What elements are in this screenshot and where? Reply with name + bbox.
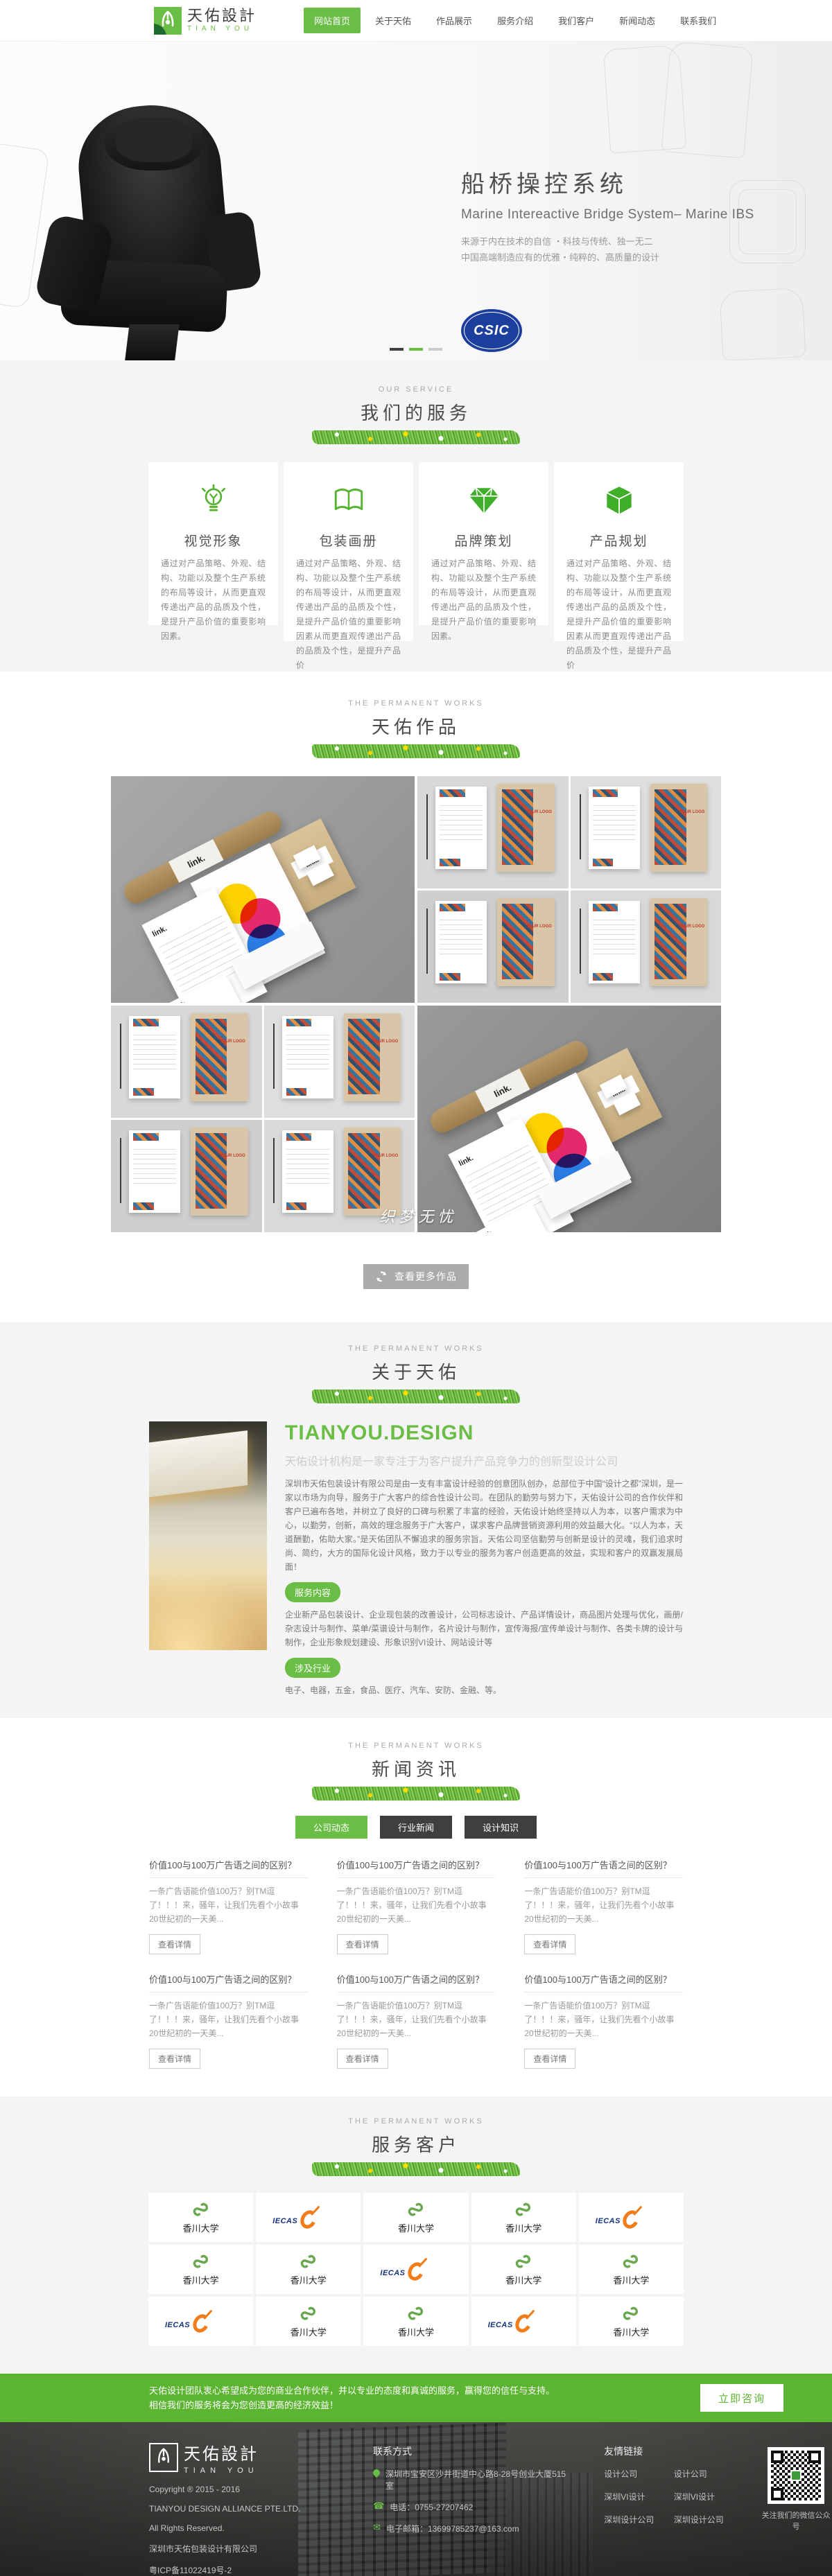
works-title: 天佑作品 [0,713,832,739]
services-eyebrow: OUR SERVICE [0,385,832,394]
service-card-product[interactable]: 产品规划 通过对产品策略、外观、结构、功能以及整个生产系统的布局等设计，从而更直… [554,462,684,641]
diamond-icon [467,483,501,518]
csic-logo: CSIC [461,309,522,352]
kagawa-university-logo [406,2200,426,2220]
kagawa-university-logo [621,2252,641,2272]
grass-divider-image [312,1390,520,1403]
office-photo [149,1421,267,1650]
portfolio-thumb[interactable]: YOUR LOGO [417,776,569,888]
portfolio-item-brochures: YOUR LOGO YOUR LOGO YOUR LOGO YOUR LOGO [417,776,721,1003]
news-item: 价值100与100万广告语之间的区别？ 一条广告语能价值100万？别TM逗了！！… [149,1858,308,1954]
tab-company-news[interactable]: 公司动态 [295,1816,367,1839]
view-detail-button[interactable]: 查看详情 [524,2049,575,2069]
news-item-title[interactable]: 价值100与100万广告语之间的区别？ [524,1972,683,1992]
clients-title: 服务客户 [0,2131,832,2157]
service-scope-text: 企业新产品包装设计、企业现包装的改善设计，公司标志设计、产品详情设计，商品图片处… [285,1608,683,1649]
clients-eyebrow: THE PERMANENT WORKS [0,2117,832,2126]
client-logo-cell[interactable]: 香川大学 [256,2297,361,2346]
news-item: 价值100与100万广告语之间的区别？ 一条广告语能价值100万？别TM逗了！！… [524,1972,683,2069]
icp-number: 粤ICP备11022419号-2 [149,2564,324,2576]
footer-logo-text-en: TIAN YOU [184,2467,259,2475]
hero-tagline-1: 来源于内在技术的自信 ・科技与传统、独一无二 [461,234,754,249]
about-eyebrow: THE PERMANENT WORKS [0,1344,832,1353]
cta-line-1: 天佑设计团队衷心希望成为您的商业合作伙伴，并以专业的态度和真诚的服务，赢得您的信… [149,2383,700,2398]
nav-item-home[interactable]: 网站首页 [304,8,361,33]
jacket-sketch [661,42,753,159]
grass-divider-image [312,2162,520,2176]
phone-text: 电话：0755-27207462 [390,2501,473,2513]
portfolio-thumb[interactable]: YOUR LOGO [571,891,722,1003]
service-card-text: 通过对产品策略、外观、结构、功能以及整个生产系统的布局等设计，从而更直观传递出产… [161,557,266,644]
hero-tagline-2: 中国高端制造应有的优雅・纯粹的、高质量的设计 [461,249,754,265]
iecas-logo [189,2310,213,2333]
tab-design-knowledge[interactable]: 设计知识 [465,1816,537,1839]
nav-item-services[interactable]: 服务介绍 [487,8,544,33]
hero-subtitle: Marine Intereactive Bridge System– Marin… [461,207,754,222]
book-icon [331,483,366,518]
service-card-title: 产品规划 [566,531,671,550]
phone-icon: ☎ [373,2501,384,2511]
client-logo-cell[interactable]: IECAS [148,2297,253,2346]
main-nav: 网站首页 关于天佑 作品展示 服务介绍 我们客户 新闻动态 联系我们 [304,8,727,33]
nav-item-clients[interactable]: 我们客户 [548,8,605,33]
client-logo-cell[interactable]: 香川大学 [148,2193,253,2242]
view-detail-button[interactable]: 查看详情 [149,2049,200,2069]
copyright-text: Copyright ® 2015 - 2016 [149,2485,324,2494]
news-item-title[interactable]: 价值100与100万广告语之间的区别？ [524,1858,683,1878]
news-item: 价值100与100万广告语之间的区别？ 一条广告语能价值100万？别TM逗了！！… [524,1858,683,1954]
carousel-indicators [390,348,442,351]
kagawa-university-logo [299,2252,318,2272]
client-logo-cell[interactable]: 香川大学 [148,2245,253,2294]
service-card-text: 通过对产品策略、外观、结构、功能以及整个生产系统的布局等设计，从而更直观传递出产… [431,557,536,644]
news-item-excerpt: 一条广告语能价值100万？别TM逗了！！！来，骚年，让我们先看个小故事 20世纪… [337,1999,496,2040]
service-card-text: 通过对产品策略、外观、结构、功能以及整个生产系统的布局等设计，从而更直观传递出产… [296,557,401,673]
nav-item-contact[interactable]: 联系我们 [670,8,727,33]
section-services: OUR SERVICE 我们的服务 视觉形象 通过对产品策略、外观、结构、功能以… [0,360,832,672]
client-logo-cell[interactable]: 香川大学 [579,2245,684,2294]
news-item-excerpt: 一条广告语能价值100万？别TM逗了！！！来，骚年，让我们先看个小故事 20世纪… [149,1999,308,2040]
news-tabs: 公司动态 行业新闻 设计知识 [0,1816,832,1839]
portfolio-grid: link. link. link. link. YOUR LOGO YOUR L… [111,776,721,1232]
industries-tag[interactable]: 涉及行业 [285,1658,340,1678]
friend-link[interactable]: 深圳VI设计 [604,2491,665,2503]
news-item-excerpt: 一条广告语能价值100万？别TM逗了！！！来，骚年，让我们先看个小故事 20世纪… [524,1884,683,1926]
cta-line-2: 相信我们的服务将会为您创造更高的经济效益！ [149,2398,700,2412]
carousel-dot[interactable] [428,348,442,351]
news-title: 新闻资讯 [0,1755,832,1781]
friend-link[interactable]: 设计公司 [674,2468,735,2480]
news-item-excerpt: 一条广告语能价值100万？别TM逗了！！！来，骚年，让我们先看个小故事 20世纪… [149,1884,308,1926]
service-card-title: 视觉形象 [161,531,266,550]
kagawa-university-logo [191,2252,211,2272]
industries-text: 电子、电器，五金，食品、医疗、汽车、安防、金融、等。 [285,1683,683,1697]
about-subheading: 天佑设计机构是一家专注于为客户提升产品竞争力的创新型设计公司 [285,1452,683,1469]
client-logo-cell[interactable]: 香川大学 [471,2193,576,2242]
tianyou-logo-icon [154,7,182,35]
portfolio-thumb[interactable]: YOUR LOGO [264,1006,415,1118]
portfolio-thumb[interactable]: YOUR LOGO [111,1120,262,1232]
hero-banner: 船桥操控系统 Marine Intereactive Bridge System… [0,42,832,360]
mail-icon: ✉ [373,2523,381,2532]
kagawa-university-logo [299,2304,318,2324]
cube-icon [602,483,636,518]
portfolio-thumb[interactable]: YOUR LOGO [111,1006,262,1118]
news-item-excerpt: 一条广告语能价值100万？别TM逗了！！！来，骚年，让我们先看个小故事 20世纪… [524,1999,683,2040]
rights-text: All Rights Reserved. [149,2523,324,2533]
friend-link[interactable]: 深圳设计公司 [674,2514,735,2525]
email-text: 电子邮箱：13699785237@163.com [386,2523,519,2534]
news-item: 价值100与100万广告语之间的区别？ 一条广告语能价值100万？别TM逗了！！… [337,1972,496,2069]
grass-divider-image [312,744,520,758]
view-detail-button[interactable]: 查看详情 [524,1934,575,1954]
section-news: THE PERMANENT WORKS 新闻资讯 公司动态 行业新闻 设计知识 … [0,1718,832,2096]
location-icon [372,2468,381,2478]
refresh-icon [375,1270,388,1283]
client-logo-cell[interactable]: IECAS [471,2297,576,2346]
friend-link[interactable]: 深圳VI设计 [674,2491,735,2503]
hero-text-block: 船桥操控系统 Marine Intereactive Bridge System… [461,165,754,265]
address-text: 深圳市宝安区沙井街道中心路8-28号创业大厦515室 [385,2468,569,2491]
service-card-title: 包装画册 [296,531,401,550]
site-footer: 天佑設計 TIAN YOU Copyright ® 2015 - 2016 TI… [0,2422,832,2576]
portfolio-item-stationery[interactable]: link. link. link. link. [111,776,415,1003]
news-grid: 价值100与100万广告语之间的区别？ 一条广告语能价值100万？别TM逗了！！… [149,1858,683,2069]
about-heading: TIANYOU.DESIGN [285,1421,683,1445]
service-card-text: 通过对产品策略、外观、结构、功能以及整个生产系统的布局等设计，从而更直观传递出产… [566,557,671,673]
company-name-cn: 深圳市天佑包装设计有限公司 [149,2543,324,2555]
portfolio-item-brochures: YOUR LOGO YOUR LOGO YOUR LOGO YOUR LOGO [111,1006,415,1232]
news-item-title[interactable]: 价值100与100万广告语之间的区别？ [149,1858,308,1878]
wechat-qr-code [768,2447,824,2504]
contact-title: 联系方式 [373,2444,569,2458]
iecas-logo [619,2206,643,2229]
news-eyebrow: THE PERMANENT WORKS [0,1742,832,1750]
news-item: 价值100与100万广告语之间的区别？ 一条广告语能价值100万？别TM逗了！！… [337,1858,496,1954]
client-logo-cell[interactable]: 香川大学 [579,2297,684,2346]
client-logo-cell[interactable]: IECAS [256,2193,361,2242]
section-clients: THE PERMANENT WORKS 服务客户 香川大学 IECAS 香川大学… [0,2096,832,2374]
portfolio-item-stationery[interactable]: link. link. link. link. [417,1006,721,1232]
service-scope-tag[interactable]: 服务内容 [285,1582,340,1602]
portfolio-thumb[interactable]: YOUR LOGO [571,776,722,888]
section-works: THE PERMANENT WORKS 天佑作品 link. link. lin… [0,672,832,1322]
grass-divider-image [312,1787,520,1800]
friend-link[interactable]: 深圳设计公司 [604,2514,665,2525]
news-item-title[interactable]: 价值100与100万广告语之间的区别？ [337,1858,496,1878]
qr-caption: 关注我们的微信公众号 [760,2509,832,2532]
client-logo-cell[interactable]: IECAS [579,2193,684,2242]
logo-text-en: TIAN YOU [187,26,257,33]
company-name-en: TIANYOU DESIGN ALLIANCE PTE.LTD. [149,2504,324,2514]
kagawa-university-logo [514,2252,533,2272]
carousel-dot-active[interactable] [409,348,423,351]
nav-item-about[interactable]: 关于天佑 [365,8,422,33]
section-about: THE PERMANENT WORKS 关于天佑 TIANYOU.DESIGN … [0,1322,832,1718]
news-item-excerpt: 一条广告语能价值100万？别TM逗了！！！来，骚年，让我们先看个小故事 20世纪… [337,1884,496,1926]
service-card-branding[interactable]: 品牌策划 通过对产品策略、外观、结构、功能以及整个生产系统的布局等设计，从而更直… [419,462,548,625]
view-detail-button[interactable]: 查看详情 [337,1934,388,1954]
bulb-icon [196,483,231,518]
client-logo-cell[interactable]: 香川大学 [363,2297,468,2346]
client-logo-cell[interactable]: 香川大学 [471,2245,576,2294]
site-logo[interactable]: 天佑設計 TIAN YOU [154,7,257,35]
portfolio-thumb[interactable]: YOUR LOGO [417,891,569,1003]
news-item-title[interactable]: 价值100与100万广告语之间的区别？ [337,1972,496,1992]
service-card-brochure[interactable]: 包装画册 通过对产品策略、外观、结构、功能以及整个生产系统的布局等设计，从而更直… [284,462,413,641]
service-card-title: 品牌策划 [431,531,536,550]
carousel-dot[interactable] [390,348,404,351]
footer-logo[interactable]: 天佑設計 TIAN YOU [149,2440,324,2475]
site-header: 天佑設計 TIAN YOU 网站首页 关于天佑 作品展示 服务介绍 我们客户 新… [0,0,832,42]
cta-bar: 天佑设计团队衷心希望成为您的商业合作伙伴，并以专业的态度和真诚的服务，赢得您的信… [0,2374,832,2422]
kagawa-university-logo [621,2304,641,2324]
tianyou-logo-icon-white [149,2443,178,2472]
kagawa-university-logo [191,2200,211,2220]
logo-text-cn: 天佑設計 [187,8,257,24]
grass-divider-image [312,430,520,444]
client-logo-grid: 香川大学 IECAS 香川大学 香川大学 IECAS 香川大学 香川大学 IEC… [148,2193,684,2346]
client-logo-cell[interactable]: 香川大学 [256,2245,361,2294]
service-card-visual[interactable]: 视觉形象 通过对产品策略、外观、结构、功能以及整个生产系统的布局等设计，从而更直… [148,462,278,625]
view-detail-button[interactable]: 查看详情 [337,2049,388,2069]
works-eyebrow: THE PERMANENT WORKS [0,699,832,708]
friend-links: 设计公司 设计公司 深圳VI设计 深圳VI设计 深圳设计公司 深圳设计公司 [604,2468,735,2525]
watermark-text: 织梦无忧 [379,1204,457,1227]
footer-logo-text-cn: 天佑設計 [184,2440,259,2464]
about-title: 关于天佑 [0,1358,832,1384]
bridge-chair-photo [38,103,336,360]
consult-now-button[interactable]: 立即咨询 [700,2384,783,2412]
iecas-logo [512,2310,535,2333]
tab-industry-news[interactable]: 行业新闻 [380,1816,452,1839]
service-cards: 视觉形象 通过对产品策略、外观、结构、功能以及整个生产系统的布局等设计，从而更直… [148,462,684,641]
news-item: 价值100与100万广告语之间的区别？ 一条广告语能价值100万？别TM逗了！！… [149,1972,308,2069]
view-more-works-button[interactable]: 查看更多作品 [363,1264,469,1289]
client-logo-cell[interactable]: 香川大学 [363,2193,468,2242]
links-title: 友情链接 [604,2444,735,2458]
kagawa-university-logo [514,2200,533,2220]
chair-sketch [719,288,806,360]
client-logo-cell[interactable]: IECAS [363,2245,468,2294]
kagawa-university-logo [406,2304,426,2324]
services-title: 我们的服务 [0,399,832,425]
nav-item-news[interactable]: 新闻动态 [609,8,666,33]
iecas-logo [297,2206,320,2229]
nav-item-works[interactable]: 作品展示 [426,8,483,33]
iecas-logo [404,2258,428,2281]
about-body-text: 深圳市天佑包装设计有限公司是由一支有丰富设计经验的创意团队创办，总部位于中国“设… [285,1477,683,1574]
friend-link[interactable]: 设计公司 [604,2468,665,2480]
view-detail-button[interactable]: 查看详情 [149,1934,200,1954]
news-item-title[interactable]: 价值100与100万广告语之间的区别？ [149,1972,308,1992]
hero-title: 船桥操控系统 [461,165,754,199]
